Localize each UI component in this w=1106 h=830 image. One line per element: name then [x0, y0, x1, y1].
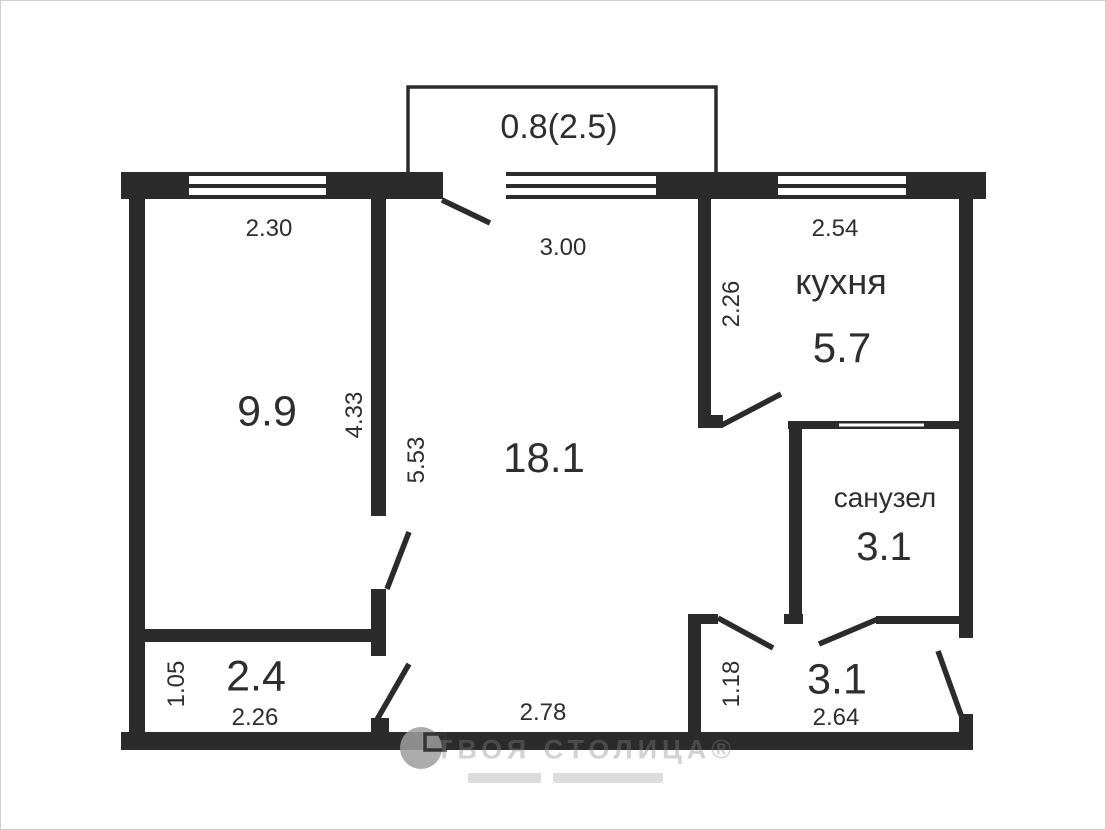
dim-living-bottom-width: 2.78	[520, 701, 567, 725]
wall-top-segment-4	[906, 172, 986, 199]
watermark-brand-text: ТВОЯ СТОЛИЦА®	[436, 735, 736, 766]
wall-kitchen-left	[698, 199, 711, 428]
kitchen-area-label: 5.7	[813, 327, 871, 369]
wall-bathroom-left	[789, 429, 802, 616]
wall-bedroom-living-stub	[371, 589, 386, 656]
dim-kitchen-width: 2.54	[812, 217, 859, 241]
kitchen-name-label: кухня	[795, 264, 887, 300]
wall-top-segment-1	[121, 172, 189, 199]
wall-left	[129, 199, 145, 750]
bedroom-area-label: 9.9	[237, 391, 297, 434]
hallway-area-label: 3.1	[807, 659, 867, 702]
hallway-door-leaf	[718, 618, 773, 648]
dim-corridor-width: 2.26	[232, 706, 279, 730]
bedroom-door-leaf	[387, 532, 409, 589]
living-area-label: 18.1	[503, 437, 585, 479]
wall-right-lower	[959, 714, 973, 750]
floor-plan-canvas: 0.8(2.5) 2.30 9.9 4.33 5.53 3.00 18.1 2.…	[0, 0, 1106, 830]
balcony-door-leaf	[442, 200, 490, 223]
kitchen-vent-line-bottom	[839, 427, 924, 430]
dim-living-depth: 5.53	[405, 437, 429, 484]
wall-right-upper	[959, 199, 973, 638]
bathroom-door-leaf	[819, 619, 878, 644]
balcony-area-label: 0.8(2.5)	[500, 110, 617, 144]
wall-top-segment-3	[656, 172, 778, 199]
bathroom-name-label: санузел	[834, 484, 937, 512]
dim-bedroom-width: 2.30	[246, 217, 293, 241]
kitchen-vent-line-top	[839, 421, 924, 424]
bathroom-area-label: 3.1	[856, 527, 912, 567]
watermark-subtitle-bar-2	[553, 773, 663, 783]
wall-kitchen-left-foot	[698, 415, 723, 428]
wall-kitchen-bottom-left	[788, 421, 839, 429]
window-kitchen	[778, 172, 906, 199]
wall-living-hallway	[688, 616, 701, 732]
entrance-door-leaf	[938, 651, 961, 715]
watermark-subtitle-bar-1	[468, 773, 541, 783]
window-living	[506, 172, 656, 199]
dim-living-width: 3.00	[540, 236, 587, 260]
corridor-area-label: 2.4	[226, 656, 286, 699]
window-bedroom	[189, 172, 326, 199]
dim-hallway-depth: 1.18	[720, 661, 744, 708]
wall-living-hallway-stub	[688, 614, 718, 624]
dim-kitchen-depth: 2.26	[720, 281, 744, 328]
wall-top-segment-2	[326, 172, 443, 199]
dim-corridor-depth: 1.05	[165, 661, 189, 708]
wall-bedroom-corridor	[145, 629, 374, 642]
dim-bedroom-depth: 4.33	[343, 392, 367, 439]
wall-bathroom-bottom	[876, 616, 959, 624]
wall-bedroom-living	[371, 199, 386, 516]
kitchen-door-leaf	[722, 394, 781, 425]
wall-bathroom-left-foot	[784, 614, 803, 624]
dim-hallway-width: 2.64	[813, 706, 860, 730]
corridor-door-leaf	[375, 664, 409, 723]
wall-kitchen-bottom-right	[924, 421, 959, 429]
